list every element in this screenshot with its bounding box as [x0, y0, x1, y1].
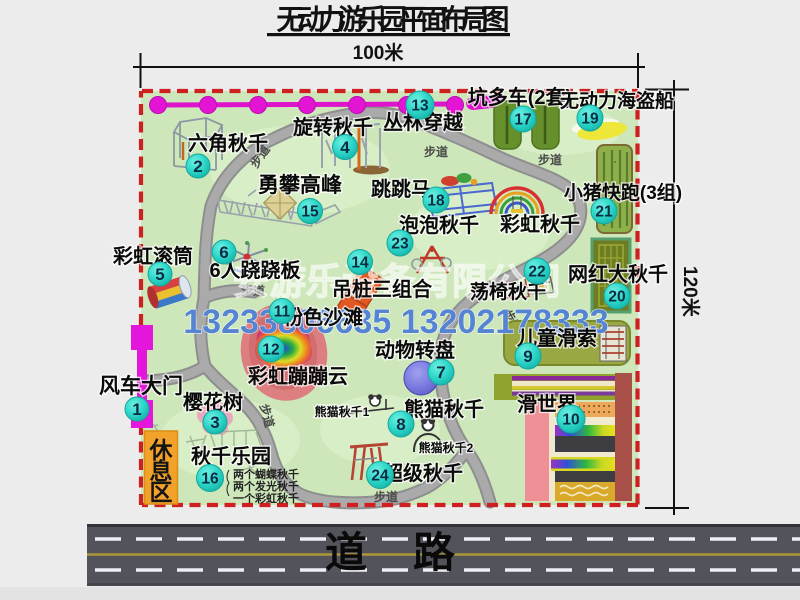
svg-text:步道: 步道	[374, 489, 398, 504]
svg-text:8: 8	[396, 415, 405, 434]
svg-text:21: 21	[595, 203, 613, 220]
svg-text:步道: 步道	[538, 152, 562, 167]
svg-text:19: 19	[581, 110, 599, 127]
svg-text:熊猫秋千2: 熊猫秋千2	[419, 440, 474, 455]
svg-text:风车大门: 风车大门	[99, 374, 183, 398]
svg-text:16: 16	[201, 470, 219, 487]
svg-text:道: 道	[325, 529, 367, 576]
svg-text:4: 4	[340, 138, 350, 157]
svg-text:六角秋千: 六角秋千	[188, 131, 268, 155]
svg-text:熊猫秋千: 熊猫秋千	[404, 397, 484, 421]
svg-text:11: 11	[274, 303, 291, 320]
svg-text:15: 15	[301, 203, 319, 220]
svg-text:7: 7	[436, 363, 445, 382]
svg-text:6: 6	[219, 243, 228, 262]
svg-text:秋千乐园: 秋千乐园	[191, 445, 271, 468]
svg-text:20: 20	[608, 288, 625, 305]
svg-text:13: 13	[411, 97, 429, 114]
svg-text:两个蝴蝶秋千: 两个蝴蝶秋千	[233, 467, 299, 481]
svg-text:18: 18	[427, 192, 445, 209]
svg-text:10: 10	[562, 411, 579, 428]
svg-text:17: 17	[514, 111, 531, 128]
svg-text:24: 24	[371, 467, 389, 484]
svg-text:超级秋千: 超级秋千	[382, 461, 463, 485]
svg-text:3: 3	[210, 413, 219, 432]
svg-text:旋转秋千: 旋转秋千	[292, 115, 373, 139]
svg-text:粉色沙滩: 粉色沙滩	[283, 305, 363, 329]
svg-text:勇攀高峰: 勇攀高峰	[258, 173, 342, 197]
svg-text:泡泡秋千: 泡泡秋千	[399, 213, 479, 237]
svg-text:12: 12	[262, 341, 279, 358]
svg-text:9: 9	[523, 347, 532, 366]
svg-text:100米: 100米	[353, 41, 405, 64]
svg-text:无动力海盗船: 无动力海盗船	[560, 89, 674, 112]
svg-text:23: 23	[391, 235, 409, 252]
svg-text:吊桩三组合: 吊桩三组合	[332, 277, 433, 301]
svg-text:坑多车(2套): 坑多车(2套)	[468, 85, 572, 109]
svg-text:网红大秋千: 网红大秋千	[568, 262, 668, 286]
svg-text:14: 14	[351, 254, 369, 271]
svg-text:5: 5	[155, 265, 164, 284]
svg-text:小猪快跑(3组): 小猪快跑(3组)	[564, 181, 682, 204]
svg-text:跳跳马: 跳跳马	[371, 177, 431, 201]
svg-text:无动力游乐园平面布局图: 无动力游乐园平面布局图	[277, 4, 510, 35]
svg-text:步道: 步道	[424, 144, 448, 159]
svg-text:路: 路	[413, 529, 456, 576]
svg-text:2: 2	[193, 157, 202, 176]
svg-text:彩虹秋千: 彩虹秋千	[499, 213, 580, 236]
svg-text:一个彩虹秋千: 一个彩虹秋千	[233, 491, 299, 505]
svg-text:彩虹蹦蹦云: 彩虹蹦蹦云	[247, 365, 348, 388]
svg-text:区: 区	[150, 479, 173, 505]
svg-text:熊猫秋千1: 熊猫秋千1	[315, 404, 370, 419]
svg-text:22: 22	[528, 263, 545, 280]
svg-text:两个发光秋千: 两个发光秋千	[233, 479, 299, 493]
svg-text:1: 1	[132, 400, 141, 419]
svg-text:120米: 120米	[679, 266, 702, 318]
svg-text:动物转盘: 动物转盘	[375, 338, 455, 362]
